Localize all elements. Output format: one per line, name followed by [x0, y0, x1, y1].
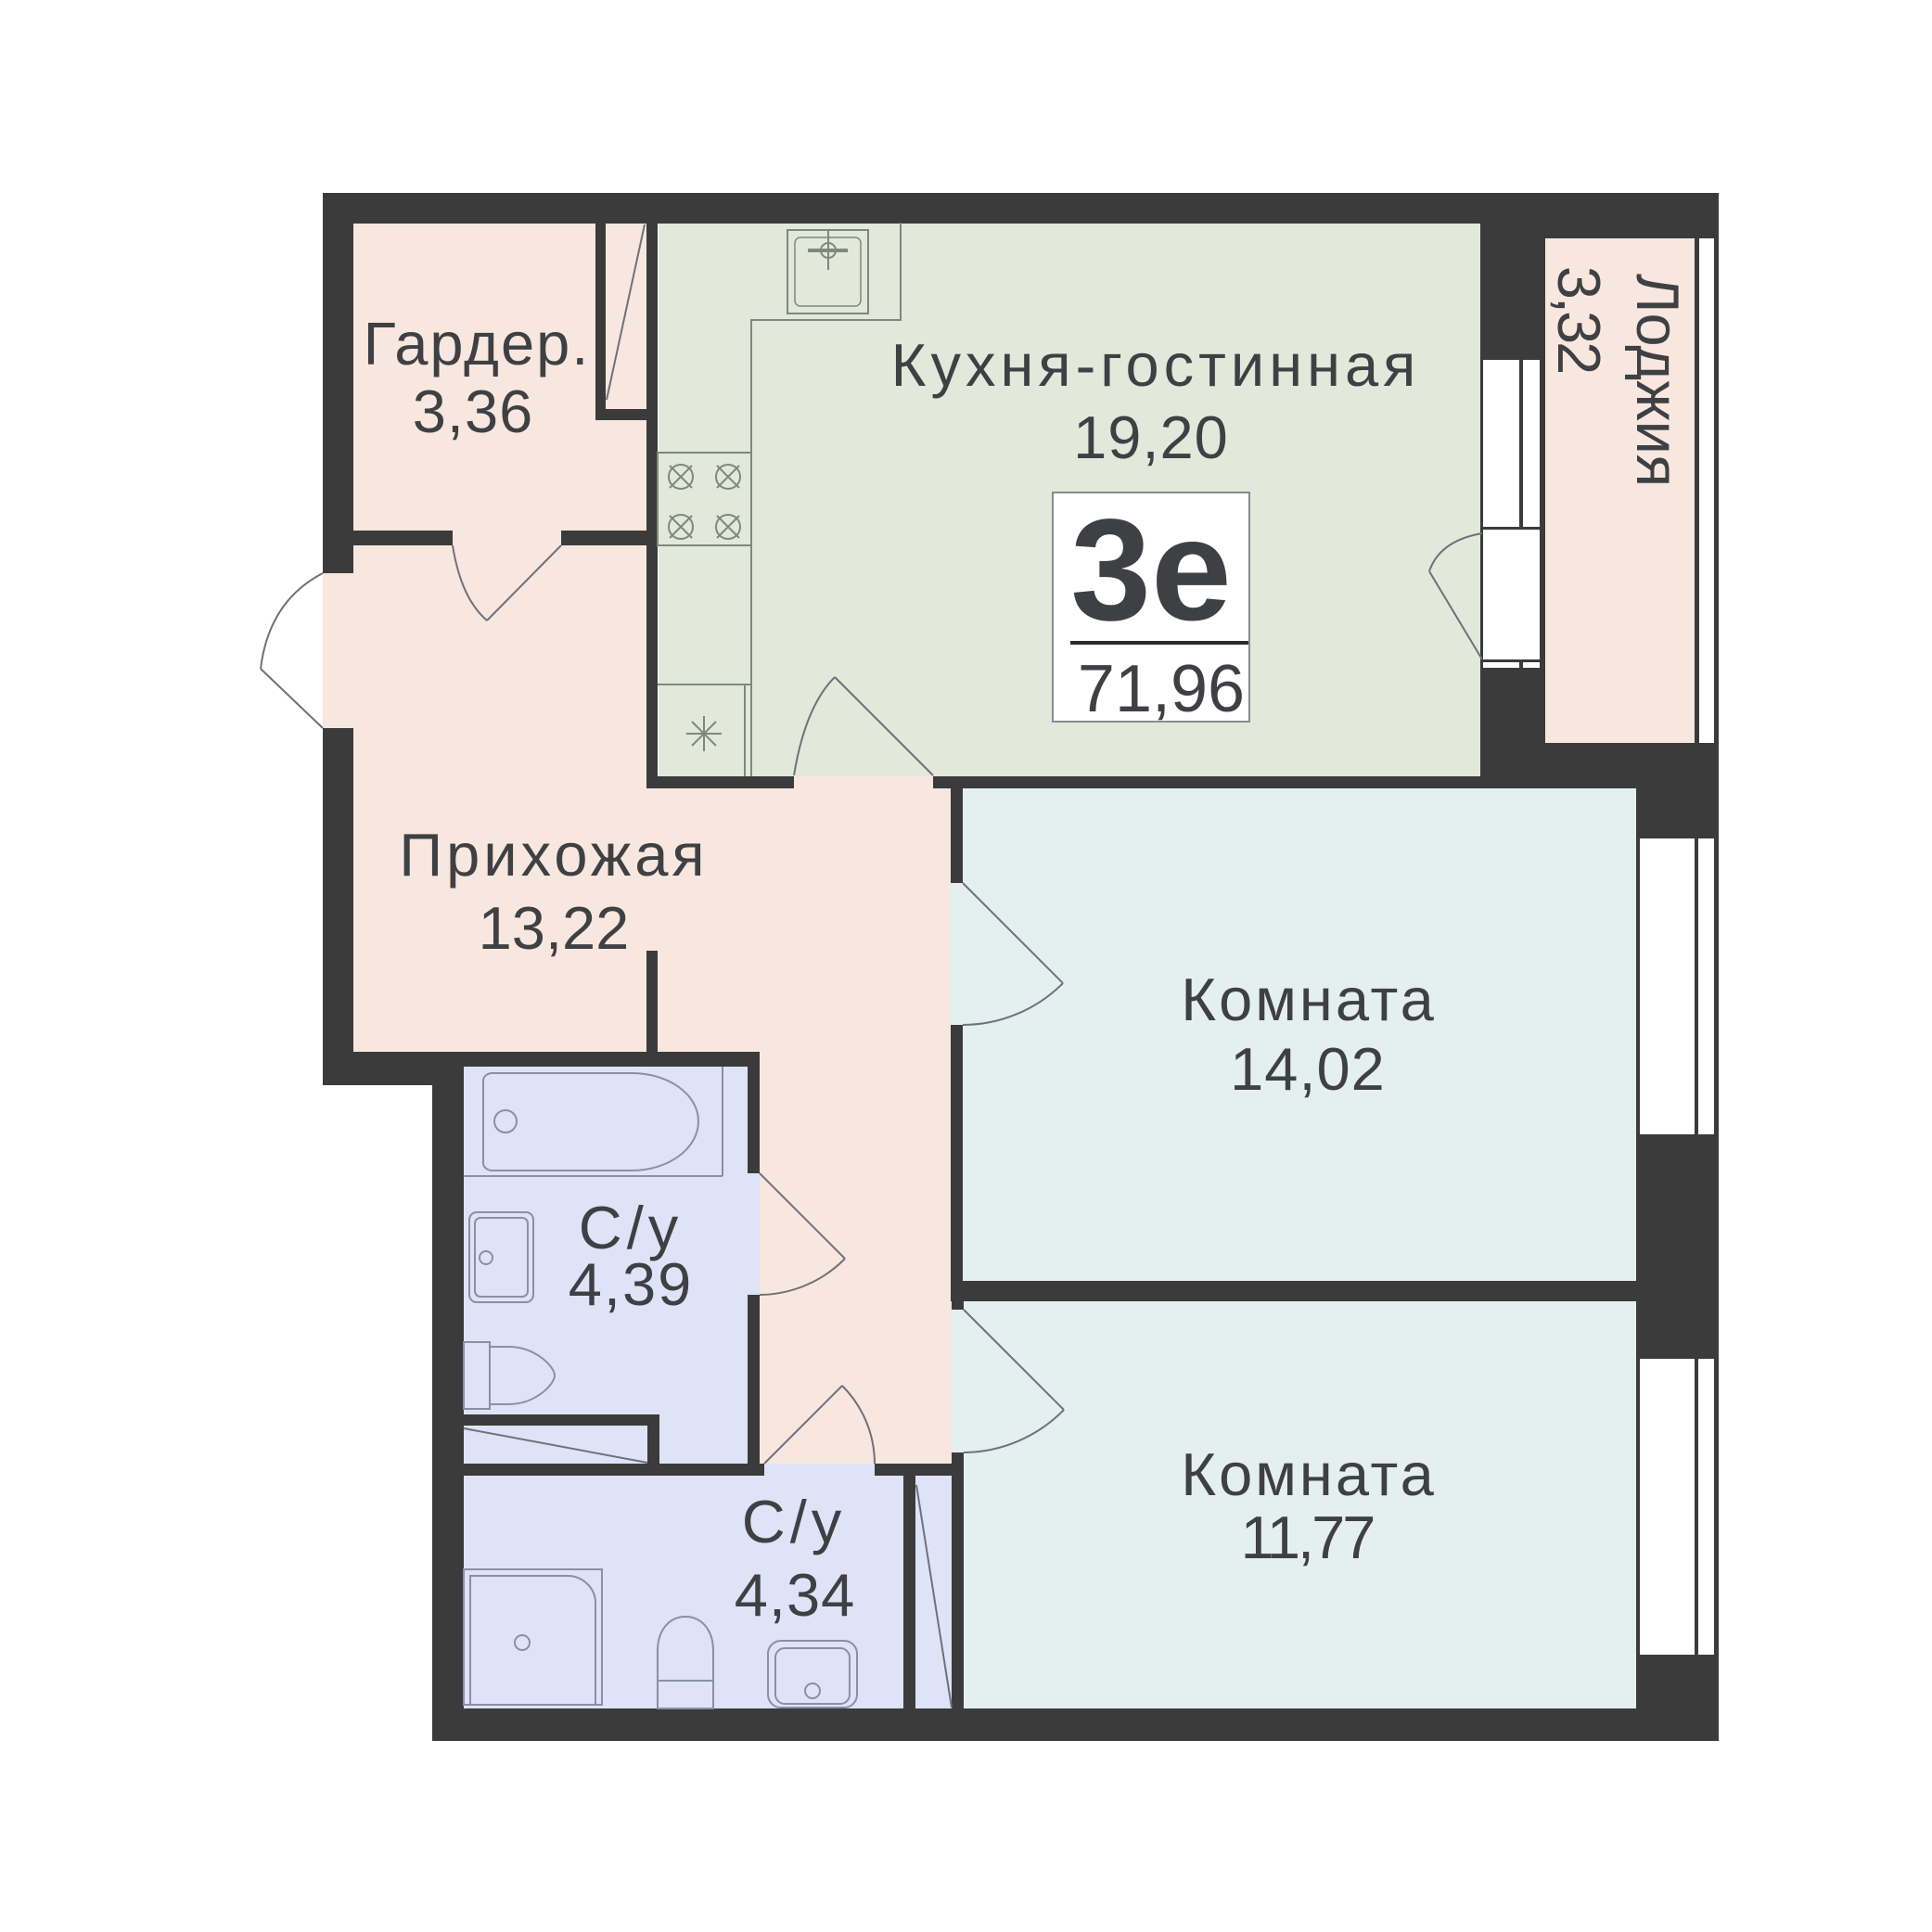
svg-text:3е: 3е: [1070, 490, 1232, 651]
svg-text:4,39: 4,39: [569, 1250, 694, 1318]
svg-text:3,36: 3,36: [413, 377, 534, 445]
svg-text:11,77: 11,77: [1241, 1503, 1374, 1571]
svg-text:Комната: Комната: [1181, 1440, 1437, 1508]
svg-text:3,32: 3,32: [1545, 266, 1613, 373]
svg-text:Прихожая: Прихожая: [399, 821, 708, 889]
svg-text:14,02: 14,02: [1230, 1035, 1386, 1103]
svg-text:4,34: 4,34: [735, 1561, 856, 1629]
svg-text:Лоджия: Лоджия: [1624, 274, 1692, 487]
svg-text:13,22: 13,22: [479, 894, 630, 962]
svg-text:71,96: 71,96: [1078, 652, 1245, 726]
svg-text:С/у: С/у: [742, 1488, 847, 1555]
svg-text:Кухня-гостинная: Кухня-гостинная: [891, 331, 1421, 399]
svg-text:19,20: 19,20: [1073, 403, 1229, 471]
svg-text:Комната: Комната: [1181, 966, 1437, 1033]
svg-text:Гардер.: Гардер.: [364, 310, 591, 377]
